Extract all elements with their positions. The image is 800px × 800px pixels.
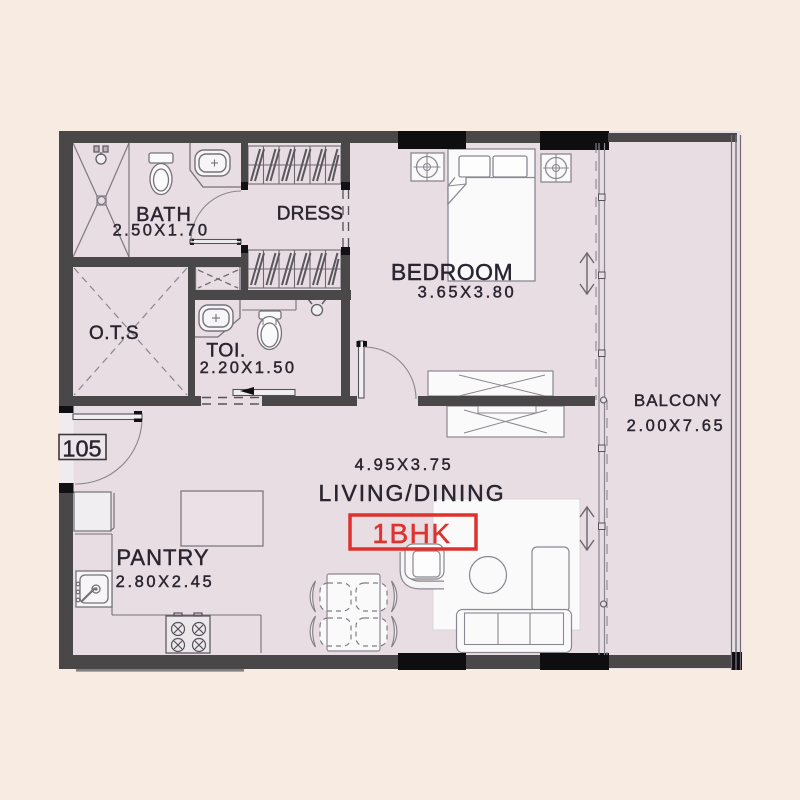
svg-text:2.20X1.50: 2.20X1.50 [200,359,297,377]
svg-text:4.95X3.75: 4.95X3.75 [355,456,454,474]
svg-text:2.50X1.70: 2.50X1.70 [113,222,210,240]
svg-text:3.65X3.80: 3.65X3.80 [418,284,517,302]
svg-text:O.T.S: O.T.S [89,323,139,344]
svg-text:1BHK: 1BHK [372,518,451,549]
svg-text:105: 105 [62,436,101,462]
svg-text:LIVING/DINING: LIVING/DINING [318,480,505,506]
svg-text:2.80X2.45: 2.80X2.45 [116,573,215,591]
svg-text:2.00X7.65: 2.00X7.65 [627,417,726,435]
svg-text:PANTRY: PANTRY [116,545,209,570]
svg-text:BEDROOM: BEDROOM [391,259,513,285]
svg-text:DRESS: DRESS [277,204,343,225]
svg-text:BALCONY: BALCONY [634,391,722,410]
